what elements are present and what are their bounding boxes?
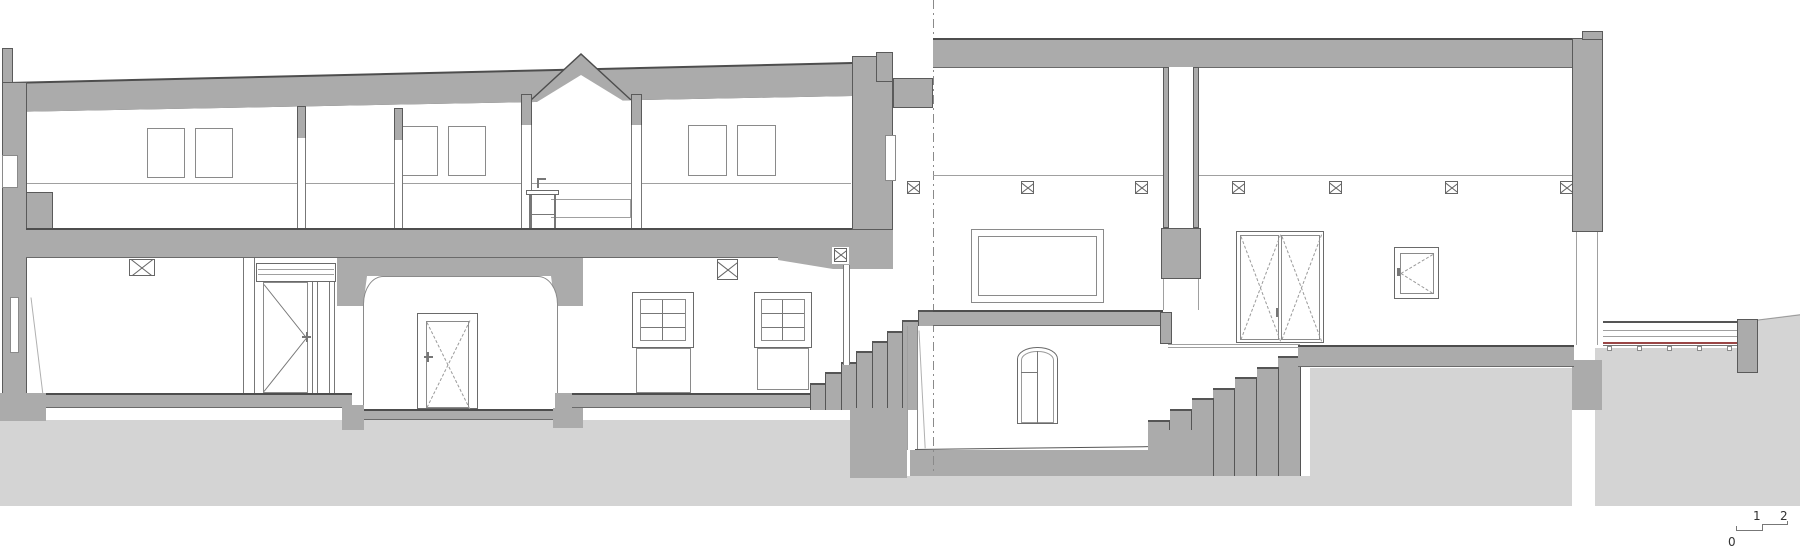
chimney-lower-line: [1198, 279, 1199, 310]
beam-marker: [834, 248, 847, 262]
scale-label-1: 1: [1753, 510, 1761, 522]
stair-step: [810, 383, 827, 410]
terrace-slab-west: [933, 310, 1163, 326]
attic-block: [26, 192, 53, 229]
attic-post-cap: [297, 106, 306, 139]
picture-window-sash: [978, 236, 1097, 296]
window-w2-mullion: [782, 300, 783, 340]
floor-slab-left: [15, 393, 352, 408]
chimney-block: [1161, 228, 1201, 279]
bay-rail-line: [551, 217, 631, 218]
foundation: [0, 393, 46, 421]
stool-leg: [554, 195, 556, 228]
deck-foot: [1697, 346, 1702, 351]
attic-window: [195, 128, 233, 178]
foundation: [553, 408, 583, 428]
chimney-side: [1163, 67, 1169, 228]
threshold-line: [1168, 347, 1300, 348]
attic-window: [400, 126, 438, 176]
deck-red-line: [1603, 342, 1738, 344]
deck-line: [1603, 336, 1738, 337]
stair-step: [1213, 388, 1235, 476]
attic-post-cap: [394, 108, 403, 141]
bay-rail-end: [630, 199, 631, 218]
deck-line: [1603, 330, 1738, 331]
scale-bar-segment: [1736, 530, 1762, 531]
wall-right-foundation: [1572, 360, 1602, 410]
cellar-wall-line: [907, 326, 908, 450]
window-w1-rail: [641, 313, 685, 314]
chimney-side: [1193, 67, 1199, 228]
door-1-header-line: [258, 274, 334, 275]
window-w2-rail: [762, 313, 804, 314]
window-w2-pedestal: [757, 348, 809, 390]
cellar-surround: [910, 450, 1163, 476]
wall-right: [1572, 38, 1603, 232]
chimney-step: [876, 52, 893, 82]
eave-arm: [893, 78, 933, 108]
beam-marker: [1021, 181, 1034, 194]
faucet-icon: [537, 178, 546, 180]
scale-label-2: 2: [1780, 510, 1788, 522]
scale-label-0: 0: [1728, 536, 1736, 548]
beam-marker: [717, 259, 738, 280]
deck-foot: [1607, 346, 1612, 351]
beam-marker: [1135, 181, 1148, 194]
porch-post: [843, 265, 850, 365]
door-1-jamb: [329, 282, 335, 393]
door-1-header: [256, 263, 336, 282]
wall-left-window-lower: [10, 297, 19, 353]
stair-step: [856, 351, 873, 410]
door-1-jamb: [312, 282, 318, 393]
deck-foot: [1667, 346, 1672, 351]
stair-step: [825, 372, 842, 410]
window-w1-sash: [640, 299, 686, 341]
terrace-slab-end-block: [1160, 312, 1172, 344]
stair-step: [1278, 356, 1300, 476]
window-w1-mullion: [662, 300, 663, 340]
interior-band-line: [933, 175, 1572, 176]
bay-rail-line: [551, 199, 631, 200]
section-drawing: 0 1 2: [0, 0, 1800, 556]
door-2-handle: [427, 352, 429, 362]
beam-marker: [1329, 181, 1342, 194]
stair-step: [1257, 367, 1279, 476]
section-axis-line: [933, 0, 934, 473]
chimney-lower-line: [1163, 279, 1164, 310]
wall-right-opening-line: [1576, 232, 1577, 345]
gable-post-cap: [631, 94, 642, 126]
attic-window: [448, 126, 486, 176]
scale-bar-tick: [1736, 526, 1737, 531]
beam-marker: [907, 181, 920, 194]
beam-marker: [1445, 181, 1458, 194]
window-w2-sash: [761, 299, 805, 341]
attic-post: [394, 140, 403, 228]
ground-right: [1310, 368, 1572, 506]
gable-post: [631, 125, 642, 228]
stair-step: [1235, 377, 1257, 476]
stair-step: [841, 362, 858, 410]
attic-floor-slab: [26, 228, 893, 258]
attic-window: [147, 128, 185, 178]
attic-window: [688, 125, 727, 176]
roof-right: [933, 38, 1603, 68]
attic-wainscot-line: [27, 183, 851, 184]
wall-reveal-curve: [31, 297, 44, 397]
parapet-right: [1582, 31, 1603, 40]
ground-center: [620, 476, 1348, 506]
gable-wall-window: [885, 135, 896, 181]
deck-foot: [1727, 346, 1732, 351]
east-window-handle: [1397, 268, 1400, 276]
cellar-door-mullion: [1037, 351, 1038, 423]
gable-post-cap: [521, 94, 532, 126]
stair-step: [887, 331, 904, 410]
door-1-header-line: [258, 269, 334, 270]
scale-bar-segment: [1762, 524, 1788, 525]
chimney-shaft: [1169, 67, 1193, 228]
beam-marker: [129, 259, 155, 276]
scale-bar-tick: [1762, 524, 1763, 531]
stool-leg: [529, 195, 531, 228]
stair-right-foundation: [1148, 430, 1208, 476]
beam-marker: [1232, 181, 1245, 194]
east-window-sash: [1400, 253, 1434, 294]
chimney-left: [2, 48, 13, 84]
attic-window: [737, 125, 776, 176]
threshold-line: [1168, 344, 1300, 345]
cellar-door-rail: [1021, 372, 1038, 373]
wall-right-opening-line: [1597, 232, 1598, 345]
wall-left-window-upper: [2, 155, 18, 188]
attic-post: [297, 138, 306, 228]
stair-foundation: [850, 408, 907, 478]
stool-bar: [530, 214, 556, 215]
window-w2-rail: [762, 327, 804, 328]
window-w1-rail: [641, 327, 685, 328]
deck-foot: [1637, 346, 1642, 351]
french-door-handle: [1276, 308, 1278, 317]
deck-pier: [1737, 319, 1758, 373]
floor-slab-right: [572, 393, 815, 408]
foundation: [342, 405, 364, 430]
door-1-handle: [306, 332, 308, 342]
partition-wall: [243, 258, 255, 393]
vault-floor-slab: [363, 409, 558, 420]
window-w1-pedestal: [636, 348, 691, 393]
stair-step: [872, 341, 889, 410]
terrace-slab-east: [1298, 345, 1574, 367]
